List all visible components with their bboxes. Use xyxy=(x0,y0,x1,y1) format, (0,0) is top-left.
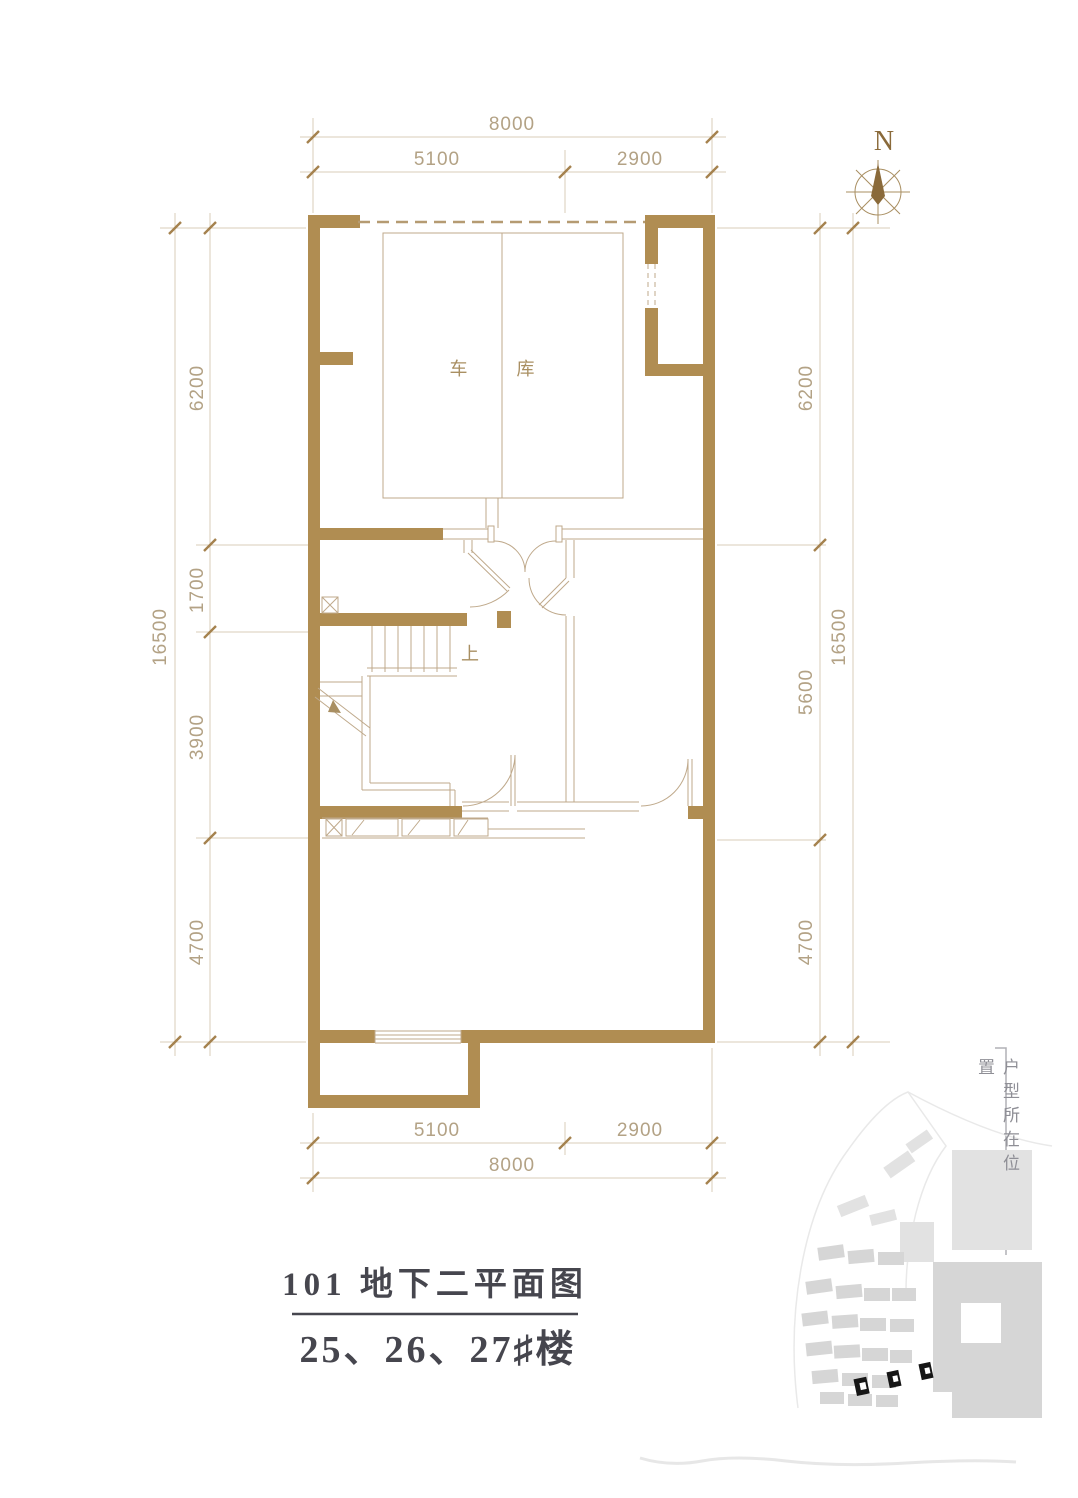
dim-right-overall: 16500 xyxy=(829,608,850,666)
dim-left-seg4: 4700 xyxy=(187,919,208,965)
dim-left-seg3: 3900 xyxy=(187,714,208,760)
door-3-left xyxy=(463,755,515,806)
wall-fixture xyxy=(322,597,338,613)
dim-top-seg1: 5100 xyxy=(414,149,460,170)
locator-caption: 户型所在位置 xyxy=(972,1058,1022,1198)
stairs xyxy=(315,626,457,806)
dim-bottom-overall: 8000 xyxy=(489,1155,535,1176)
dim-left-seg2: 1700 xyxy=(187,567,208,613)
plan-title: 101 地下二平面图 xyxy=(282,1266,588,1303)
dim-left-seg1: 6200 xyxy=(187,365,208,411)
garage-label: 车 库 xyxy=(449,359,556,379)
dim-right-seg2: 5600 xyxy=(796,669,817,715)
building-numbers: 25、26、27♯楼 xyxy=(299,1329,576,1371)
dim-right-seg3: 4700 xyxy=(796,919,817,965)
stairs-up-label: 上 xyxy=(461,644,479,664)
floorplan-drawing: 8000 5100 2900 6200 1700 3900 4700 16500… xyxy=(0,0,1078,1498)
highlighted-buildings xyxy=(853,1362,933,1396)
title-block: 101 地下二平面图 25、26、27♯楼 xyxy=(282,1266,588,1371)
door-3-right xyxy=(641,759,692,806)
north-label: N xyxy=(874,126,894,157)
dim-top-overall: 8000 xyxy=(489,114,535,135)
walls xyxy=(308,215,715,1108)
dim-top-seg2: 2900 xyxy=(617,149,663,170)
partition-and-door-2 xyxy=(529,540,574,802)
door-1 xyxy=(464,540,510,607)
bottom-window xyxy=(375,1030,461,1043)
dim-left-overall: 16500 xyxy=(150,608,171,666)
north-compass: N xyxy=(846,126,910,224)
dim-bottom-seg2: 2900 xyxy=(617,1120,663,1141)
cabinet-row xyxy=(322,818,585,838)
plan-lines xyxy=(315,222,703,1043)
dim-bottom-seg1: 5100 xyxy=(414,1120,460,1141)
bottom-smudge xyxy=(640,1458,1016,1465)
double-door xyxy=(494,541,556,572)
dim-right-seg1: 6200 xyxy=(796,365,817,411)
stair-direction-arrow xyxy=(328,700,341,713)
floorplan-page: 8000 5100 2900 6200 1700 3900 4700 16500… xyxy=(0,0,1078,1498)
